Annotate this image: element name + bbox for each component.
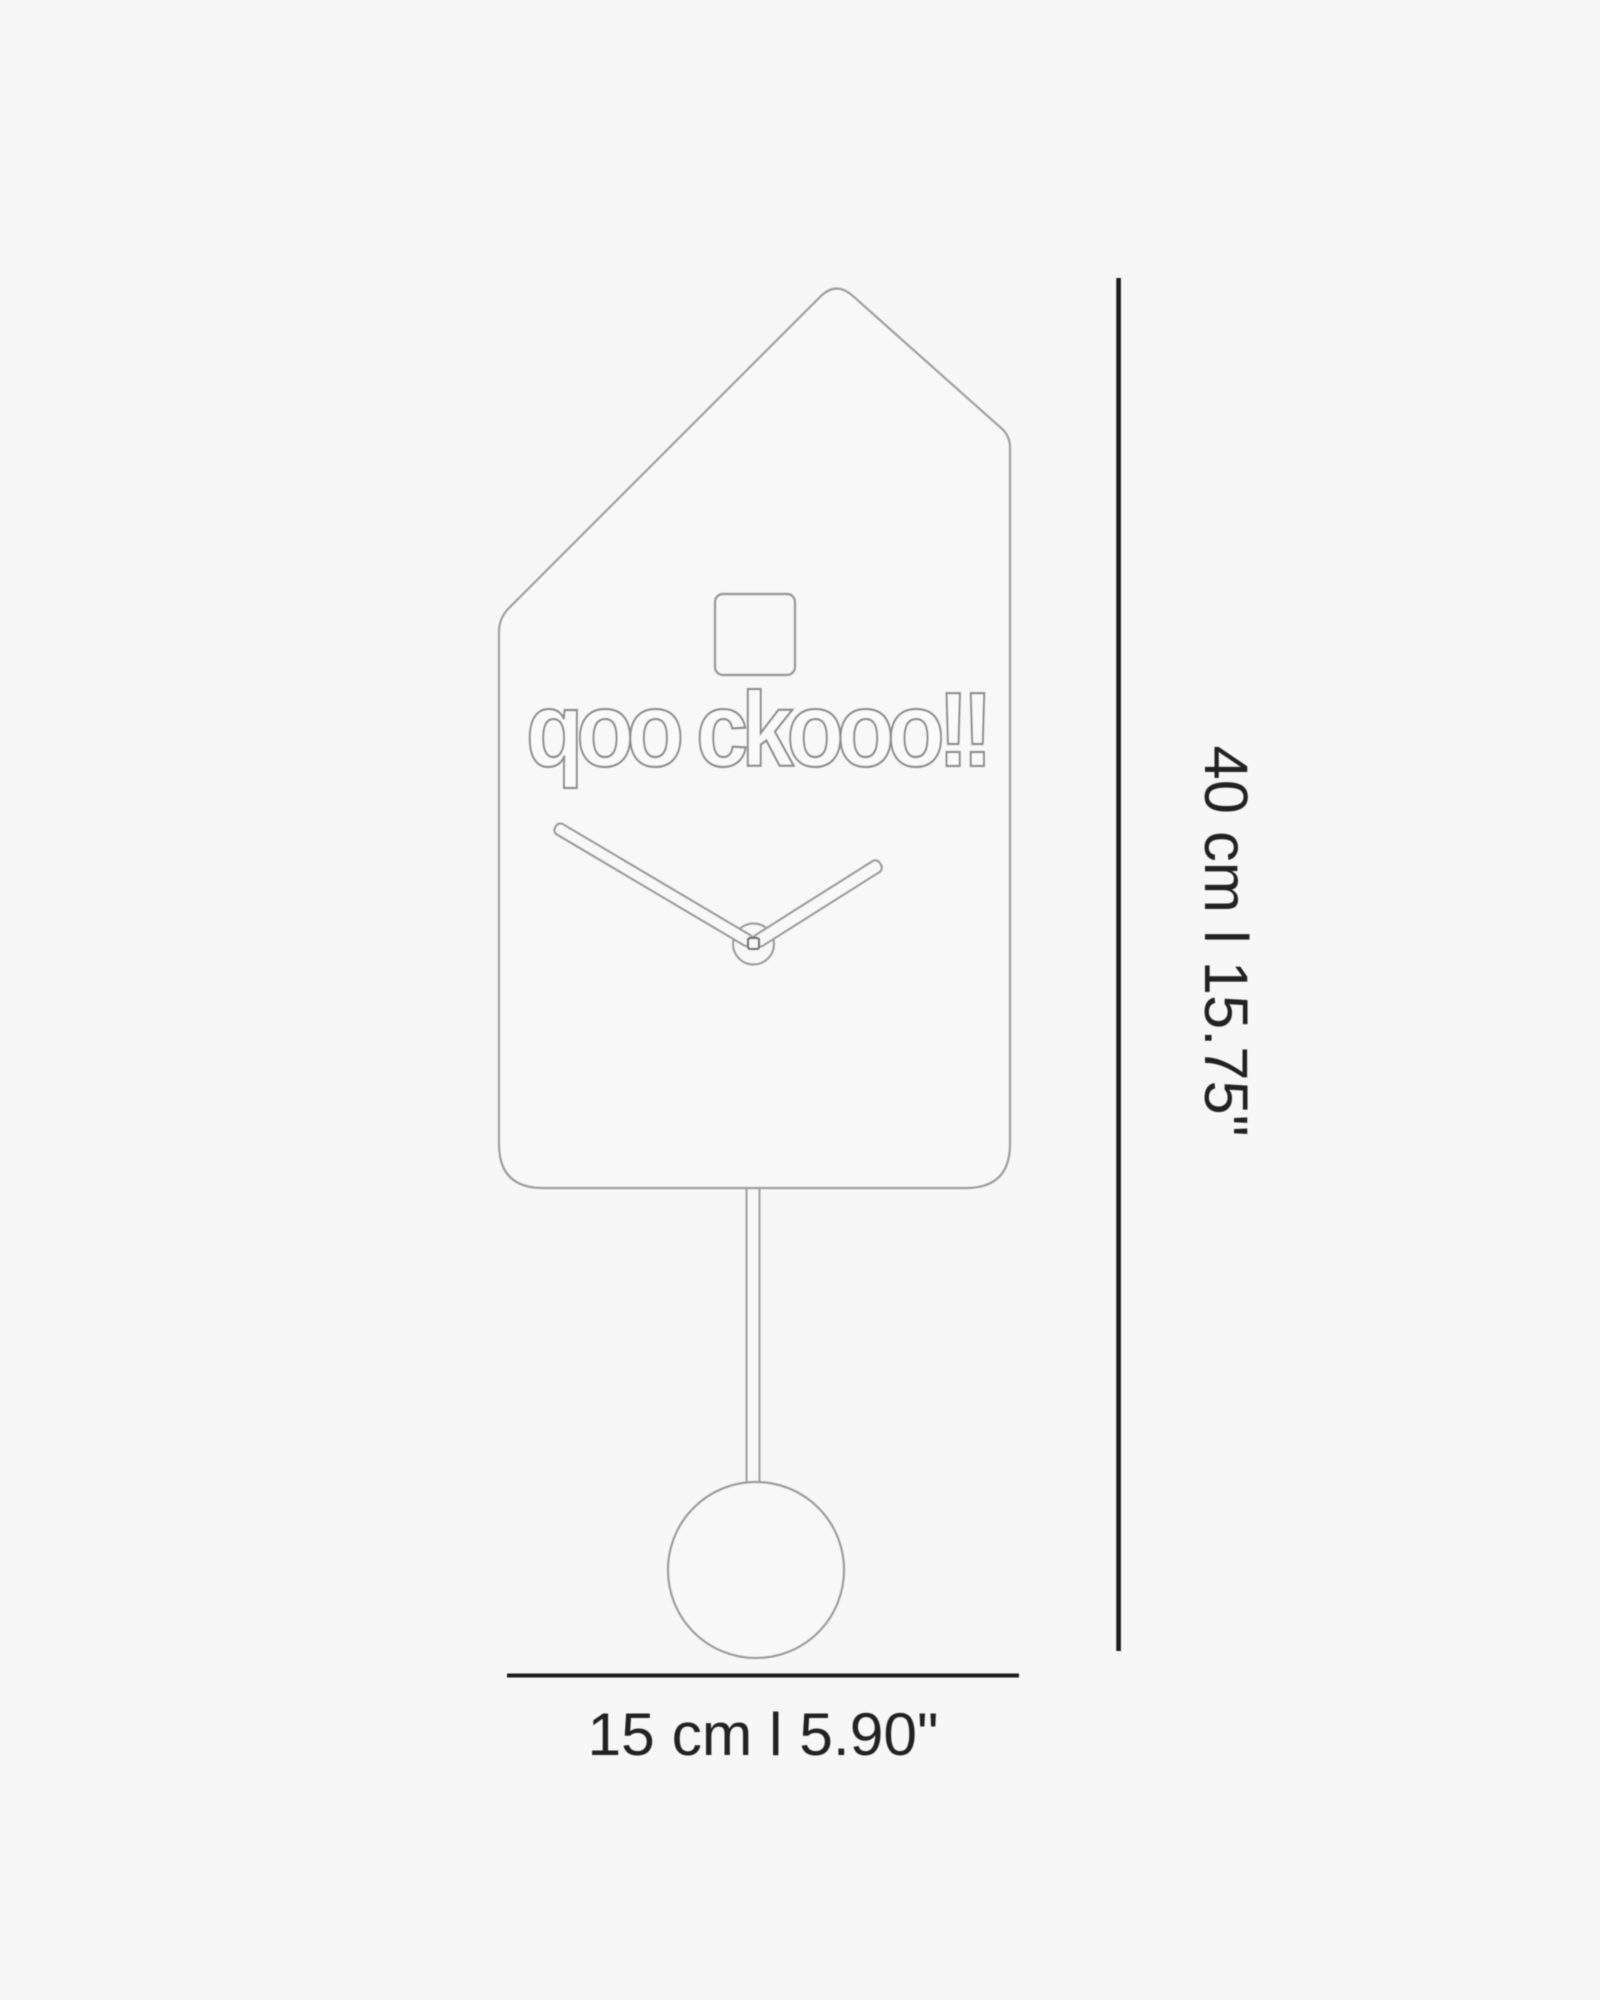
svg-text:qoo ckooo!!: qoo ckooo!! [526,671,986,789]
svg-text:40 cm l 15.75": 40 cm l 15.75" [1191,745,1260,1136]
svg-text:15 cm l 5.90": 15 cm l 5.90" [587,1700,938,1768]
